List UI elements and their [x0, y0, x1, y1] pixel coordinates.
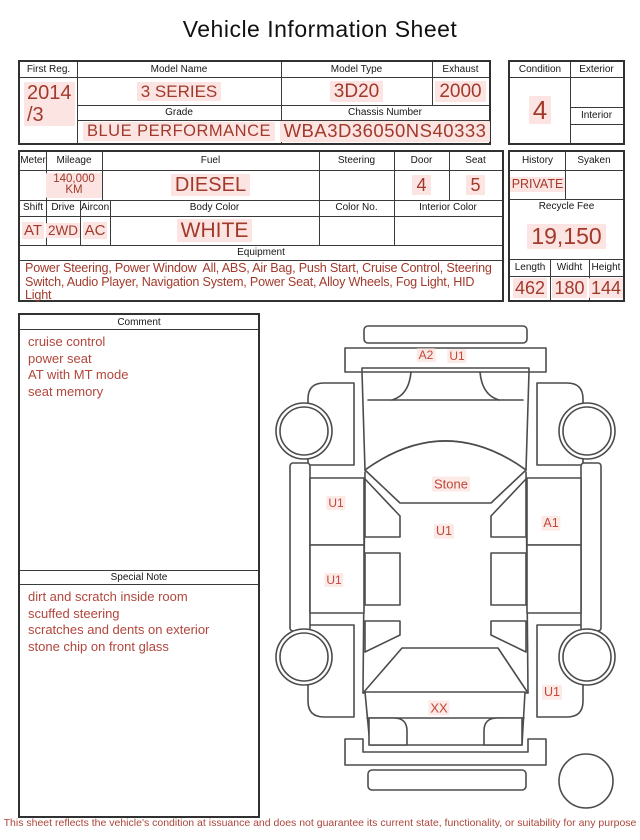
chassis-number-text: WBA3D36050NS40333 — [280, 121, 491, 142]
front-bumper — [345, 348, 546, 372]
quarter-window-left — [365, 621, 400, 652]
height-label: Height — [589, 259, 623, 276]
exterior-label: Exterior — [570, 62, 623, 77]
grade-label: Grade — [77, 105, 281, 120]
recycle-fee-text: 19,150 — [527, 224, 605, 249]
body-color-value: WHITE — [110, 216, 319, 245]
rear-bumper-strip — [368, 770, 526, 790]
front-wheel-right — [559, 403, 615, 459]
drive-text: 2WD — [46, 223, 80, 239]
steering-value — [319, 170, 394, 200]
exhaust-label: Exhaust — [432, 62, 489, 77]
width-label: Widht — [550, 259, 589, 276]
comment-title: Comment — [20, 315, 258, 329]
special-note-lines: dirt and scratch inside room scuffed ste… — [28, 589, 252, 655]
meter-value — [20, 170, 46, 200]
history-label: History — [510, 152, 565, 170]
condition-text: 4 — [529, 96, 551, 124]
drive-label: Drive — [46, 200, 80, 216]
equipment-value: Power Steering, Power Window All, ABS, A… — [20, 260, 502, 300]
model-type-label: Model Type — [281, 62, 432, 77]
fuel-label: Fuel — [102, 152, 319, 170]
spare-tire — [559, 754, 613, 808]
left-front-door-marker: U1 — [326, 496, 345, 510]
special-note-line: scratches and dents on exterior — [28, 622, 252, 639]
interior-color-value — [394, 216, 502, 245]
chassis-number-value: WBA3D36050NS40333 — [281, 120, 489, 143]
recycle-fee-label: Recycle Fee — [510, 199, 623, 215]
rear-window-panel — [363, 648, 528, 693]
special-note-line: stone chip on front glass — [28, 639, 252, 656]
shift-text: AT — [22, 222, 44, 239]
recycle-fee-value: 19,150 — [510, 215, 623, 257]
interior-label: Interior — [570, 107, 623, 124]
front-door-right — [527, 478, 581, 545]
door-value: 4 — [394, 170, 449, 200]
grade-text: BLUE PERFORMANCE — [83, 122, 275, 141]
drive-value: 2WD — [46, 216, 80, 245]
aircon-value: AC — [80, 216, 110, 245]
comment-line: power seat — [28, 351, 252, 368]
width-value: 180 — [550, 276, 589, 300]
aircon-label: Aircon — [80, 200, 110, 216]
grid-line — [20, 329, 258, 330]
exhaust-text: 2000 — [435, 81, 485, 102]
first-reg-text: 2014 /3 — [24, 82, 75, 126]
seat-label: Seat — [449, 152, 502, 170]
right-front-door-marker: A1 — [541, 516, 560, 531]
first-reg-label: First Reg. — [20, 62, 77, 77]
windshield-marker-stone: Stone — [432, 477, 470, 492]
condition-label: Condition — [510, 62, 570, 77]
header-table: First Reg. Model Name Model Type Exhaust… — [18, 60, 491, 145]
history-value: PRIVATE — [510, 170, 565, 199]
rear-door-window-right — [491, 553, 526, 605]
rear-wheel-right — [559, 629, 615, 685]
syaken-value — [565, 170, 623, 199]
front-door-left — [310, 478, 364, 545]
comment-line: seat memory — [28, 384, 252, 401]
front-bumper-strip — [364, 326, 527, 343]
length-value: 462 — [510, 276, 550, 300]
door-text: 4 — [412, 175, 430, 195]
side-sill-left — [290, 463, 310, 631]
left-rear-door-marker: U1 — [324, 573, 343, 587]
interior-color-label: Interior Color — [394, 200, 502, 216]
condition-table: Condition Exterior Interior 4 — [508, 60, 625, 145]
seat-text: 5 — [466, 175, 484, 195]
model-name-text: 3 SERIES — [137, 82, 222, 101]
comment-line: AT with MT mode — [28, 367, 252, 384]
seat-value: 5 — [449, 170, 502, 200]
width-text: 180 — [552, 278, 586, 298]
body-color-label: Body Color — [110, 200, 319, 216]
grade-value: BLUE PERFORMANCE — [77, 120, 281, 143]
comment-lines: cruise control power seat AT with MT mod… — [28, 334, 252, 400]
special-note-line: scuffed steering — [28, 606, 252, 623]
right-rear-fender-marker: U1 — [542, 685, 562, 700]
first-reg-value: 2014 /3 — [22, 78, 79, 146]
side-sill-right — [581, 463, 601, 631]
length-label: Length — [510, 259, 550, 276]
car-diagram-svg — [260, 315, 640, 835]
model-name-label: Model Name — [77, 62, 281, 77]
page-title: Vehicle Information Sheet — [0, 16, 640, 43]
meter-label: Meter — [20, 152, 46, 170]
tail-light-right — [484, 718, 522, 745]
car-damage-diagram: A2 U1 Stone U1 U1 A1 U1 U1 XX — [260, 315, 640, 835]
equipment-label: Equipment — [20, 245, 502, 260]
body-color-text: WHITE — [177, 219, 253, 242]
interior-value — [570, 124, 623, 143]
mileage-text: 140,000 KM — [46, 173, 102, 198]
steering-label: Steering — [319, 152, 394, 170]
history-table: History Syaken PRIVATE Recycle Fee 19,15… — [508, 150, 625, 302]
color-no-label: Color No. — [319, 200, 394, 216]
grid-line — [20, 584, 258, 585]
comment-line: cruise control — [28, 334, 252, 351]
model-type-value: 3D20 — [281, 77, 432, 105]
trunk-marker-xx: XX — [428, 701, 449, 716]
shift-label: Shift — [20, 200, 46, 216]
mileage-value: 140,000 KM — [46, 170, 102, 200]
special-note-line: dirt and scratch inside room — [28, 589, 252, 606]
front-bumper-marker-u1: U1 — [447, 349, 466, 363]
special-note-title: Special Note — [20, 570, 258, 584]
rear-wheel-left — [276, 629, 332, 685]
aircon-text: AC — [83, 222, 108, 239]
spec-table: Meter Mileage Fuel Steering Door Seat 14… — [18, 150, 504, 302]
height-value: 144 — [589, 276, 623, 300]
syaken-label: Syaken — [565, 152, 623, 170]
chassis-number-label: Chassis Number — [281, 105, 489, 120]
exterior-value — [570, 77, 623, 107]
height-text: 144 — [589, 278, 623, 298]
fuel-text: DIESEL — [171, 174, 250, 196]
condition-value: 4 — [510, 77, 570, 143]
exhaust-value: 2000 — [432, 77, 489, 105]
front-wheel-left — [276, 403, 332, 459]
comment-box: Comment cruise control power seat AT wit… — [18, 313, 260, 818]
roof-marker: U1 — [434, 524, 454, 539]
fuel-value: DIESEL — [102, 170, 319, 200]
front-bumper-marker-a2: A2 — [417, 348, 436, 362]
history-text: PRIVATE — [510, 177, 566, 192]
rear-door-right — [527, 545, 581, 613]
rear-door-window-left — [365, 553, 400, 605]
shift-value: AT — [20, 216, 46, 245]
model-name-value: 3 SERIES — [77, 77, 281, 105]
model-type-text: 3D20 — [330, 81, 383, 102]
footer-disclaimer: This sheet reflects the vehicle's condit… — [0, 817, 640, 829]
length-text: 462 — [513, 278, 547, 298]
tail-light-left — [369, 718, 407, 745]
door-label: Door — [394, 152, 449, 170]
mileage-label: Mileage — [46, 152, 102, 170]
color-no-value — [319, 216, 394, 245]
